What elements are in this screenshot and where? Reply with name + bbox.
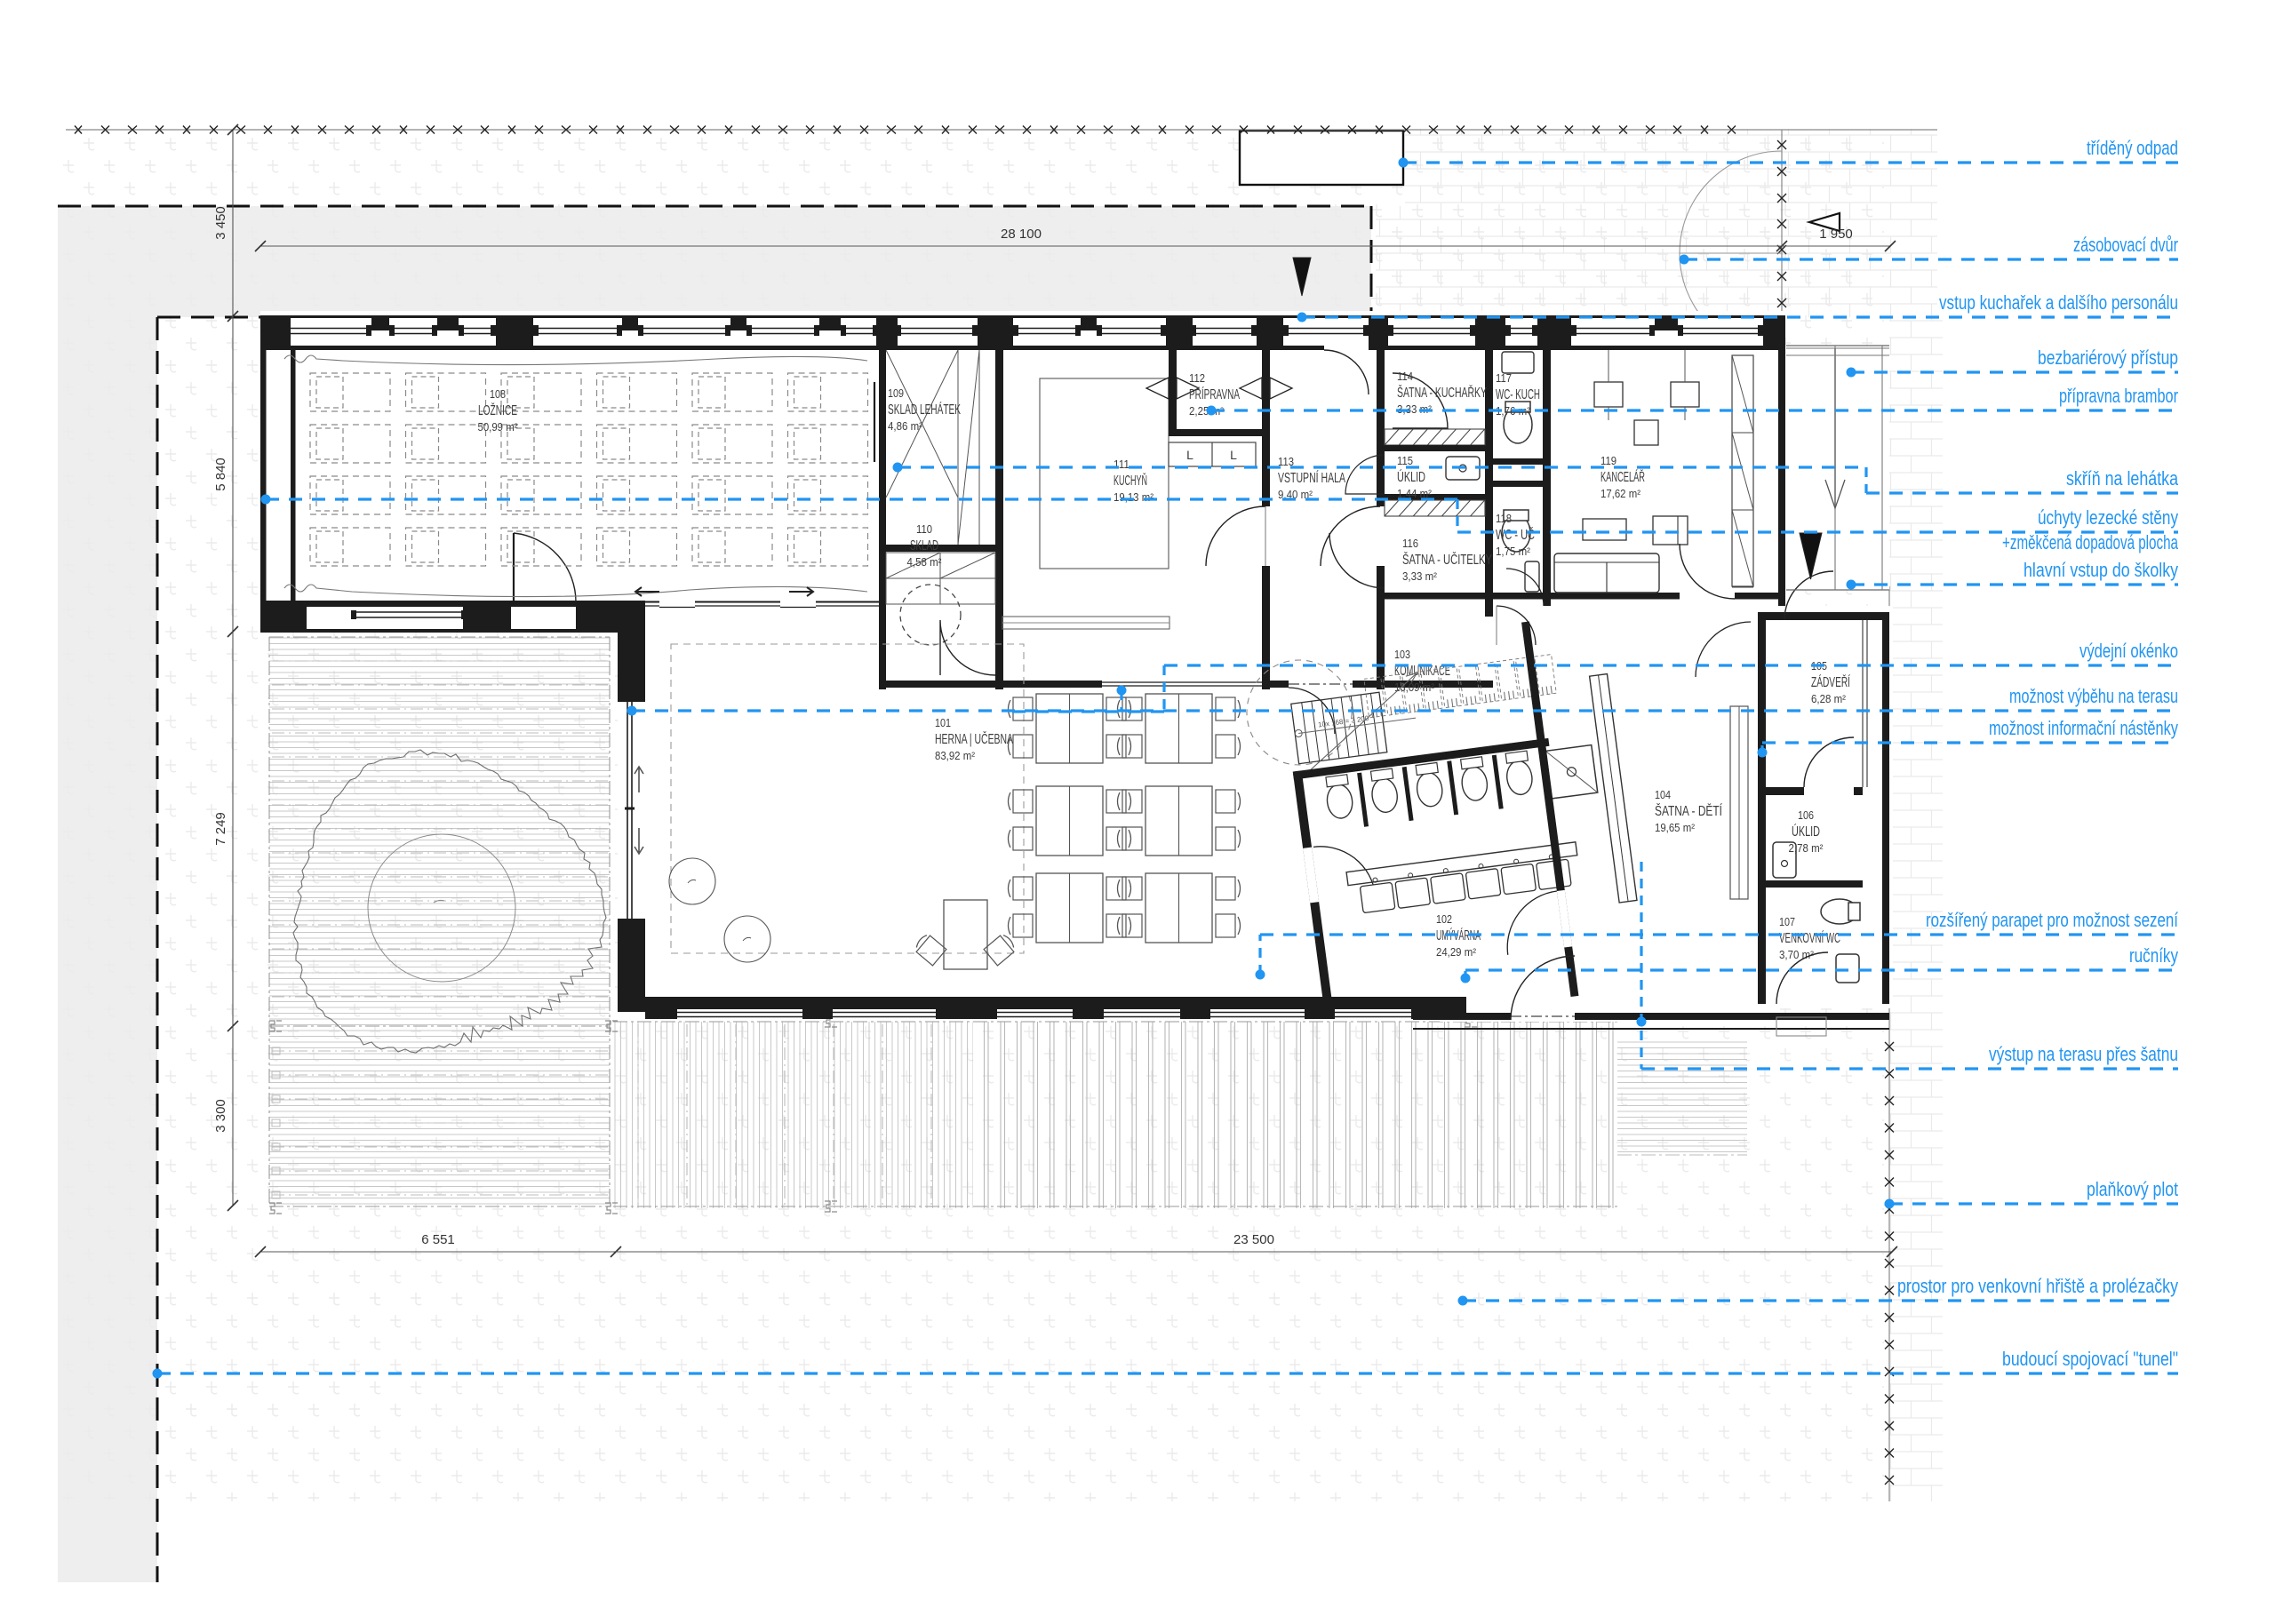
- svg-text:28 100: 28 100: [1001, 227, 1042, 242]
- svg-text:L: L: [1186, 448, 1193, 462]
- svg-text:WC - UČ: WC - UČ: [1496, 528, 1535, 543]
- svg-text:VSTUPNÍ HALA: VSTUPNÍ HALA: [1278, 471, 1345, 486]
- svg-text:104: 104: [1655, 789, 1671, 801]
- svg-text:106: 106: [1798, 809, 1814, 822]
- svg-text:3,70 m²: 3,70 m²: [1779, 949, 1814, 961]
- svg-text:83,92 m²: 83,92 m²: [935, 750, 975, 762]
- svg-text:107: 107: [1779, 916, 1795, 928]
- svg-text:KANCELÁŘ: KANCELÁŘ: [1600, 470, 1645, 485]
- svg-text:111: 111: [1114, 458, 1130, 471]
- svg-text:ručníky: ručníky: [2129, 944, 2178, 967]
- svg-text:4,58 m²: 4,58 m²: [907, 556, 942, 569]
- svg-text:možnost výběhu na terasu: možnost výběhu na terasu: [2009, 685, 2178, 707]
- svg-text:výdejní okénko: výdejní okénko: [2079, 640, 2178, 662]
- svg-text:SKLAD: SKLAD: [910, 538, 938, 553]
- svg-text:101: 101: [935, 717, 951, 729]
- svg-text:L: L: [1230, 448, 1237, 462]
- svg-text:vstup kuchařek a dalšího perso: vstup kuchařek a dalšího personálu: [1939, 291, 2178, 314]
- svg-text:SKLAD LEHÁTEK: SKLAD LEHÁTEK: [888, 402, 961, 418]
- svg-text:118: 118: [1496, 513, 1512, 525]
- svg-text:+změkčená dopadová plocha: +změkčená dopadová plocha: [2002, 531, 2179, 553]
- svg-text:ÚKLID: ÚKLID: [1792, 824, 1820, 840]
- svg-text:102: 102: [1436, 913, 1452, 926]
- svg-text:HERNA | UČEBNA: HERNA | UČEBNA: [935, 732, 1013, 747]
- svg-text:plaňkový plot: plaňkový plot: [2087, 1178, 2178, 1200]
- svg-text:19,13 m²: 19,13 m²: [1114, 491, 1153, 504]
- svg-text:19,65 m²: 19,65 m²: [1655, 822, 1695, 834]
- svg-text:tříděný odpad: tříděný odpad: [2087, 137, 2178, 159]
- svg-text:3 300: 3 300: [213, 1099, 228, 1133]
- svg-text:110: 110: [916, 523, 932, 536]
- svg-text:108: 108: [490, 388, 506, 401]
- svg-text:prostor pro venkovní hřiště a: prostor pro venkovní hřiště a prolézačky: [1897, 1275, 2178, 1297]
- svg-text:115: 115: [1397, 455, 1413, 467]
- svg-text:výstup na terasu přes šatnu: výstup na terasu přes šatnu: [1989, 1043, 2178, 1065]
- svg-text:103: 103: [1394, 649, 1410, 661]
- svg-text:114: 114: [1397, 370, 1413, 383]
- svg-text:17,62 m²: 17,62 m²: [1600, 488, 1640, 500]
- svg-text:23 500: 23 500: [1233, 1232, 1274, 1247]
- svg-text:ŠATNA - UČITELKY: ŠATNA - UČITELKY: [1402, 553, 1492, 568]
- svg-text:KUCHYŇ: KUCHYŇ: [1114, 474, 1147, 489]
- svg-text:1 950: 1 950: [1819, 227, 1853, 242]
- svg-text:bezbariérový přístup: bezbariérový přístup: [2038, 346, 2178, 369]
- svg-text:7 249: 7 249: [213, 812, 228, 846]
- svg-text:zásobovací dvůr: zásobovací dvůr: [2073, 234, 2178, 256]
- svg-text:5 840: 5 840: [213, 458, 228, 491]
- svg-text:109: 109: [888, 387, 904, 400]
- svg-text:116: 116: [1402, 537, 1418, 550]
- svg-text:úchyty lezecké stěny: úchyty lezecké stěny: [2038, 506, 2178, 529]
- svg-text:2,78 m²: 2,78 m²: [1789, 842, 1824, 855]
- svg-text:117: 117: [1496, 372, 1512, 385]
- svg-text:hlavní vstup do školky: hlavní vstup do školky: [2024, 559, 2178, 581]
- svg-text:ŠATNA - DĚTÍ: ŠATNA - DĚTÍ: [1655, 804, 1723, 819]
- svg-text:4,86 m²: 4,86 m²: [888, 420, 922, 433]
- svg-text:PŘÍPRAVNA: PŘÍPRAVNA: [1189, 387, 1240, 402]
- svg-text:3 450: 3 450: [213, 206, 228, 240]
- svg-text:6 551: 6 551: [421, 1232, 455, 1247]
- svg-text:LOŽNICE: LOŽNICE: [478, 403, 517, 418]
- svg-text:skříň na lehátka: skříň na lehátka: [2066, 467, 2179, 490]
- svg-text:WC- KUCH: WC- KUCH: [1496, 387, 1540, 402]
- svg-text:budoucí spojovací "tunel": budoucí spojovací "tunel": [2002, 1348, 2178, 1370]
- svg-text:přípravna brambor: přípravna brambor: [2059, 385, 2178, 407]
- svg-text:možnost informační nástěnky: možnost informační nástěnky: [1989, 717, 2178, 739]
- svg-text:rozšířený parapet pro možnost: rozšířený parapet pro možnost sezení: [1926, 909, 2178, 931]
- svg-text:112: 112: [1189, 372, 1205, 385]
- svg-text:VENKOVNÍ WC: VENKOVNÍ WC: [1779, 931, 1840, 946]
- svg-text:ÚKLID: ÚKLID: [1397, 470, 1425, 485]
- svg-text:119: 119: [1600, 455, 1616, 467]
- svg-text:ŠATNA - KUCHAŘKY: ŠATNA - KUCHAŘKY: [1397, 386, 1487, 401]
- svg-text:ZÁDVEŘÍ: ZÁDVEŘÍ: [1811, 675, 1850, 690]
- svg-text:6,28 m²: 6,28 m²: [1811, 693, 1846, 705]
- svg-text:50,99 m²: 50,99 m²: [478, 421, 518, 434]
- svg-text:1,75 m²: 1,75 m²: [1496, 545, 1530, 558]
- svg-text:3,33 m²: 3,33 m²: [1402, 570, 1437, 583]
- svg-text:24,29 m²: 24,29 m²: [1436, 946, 1476, 959]
